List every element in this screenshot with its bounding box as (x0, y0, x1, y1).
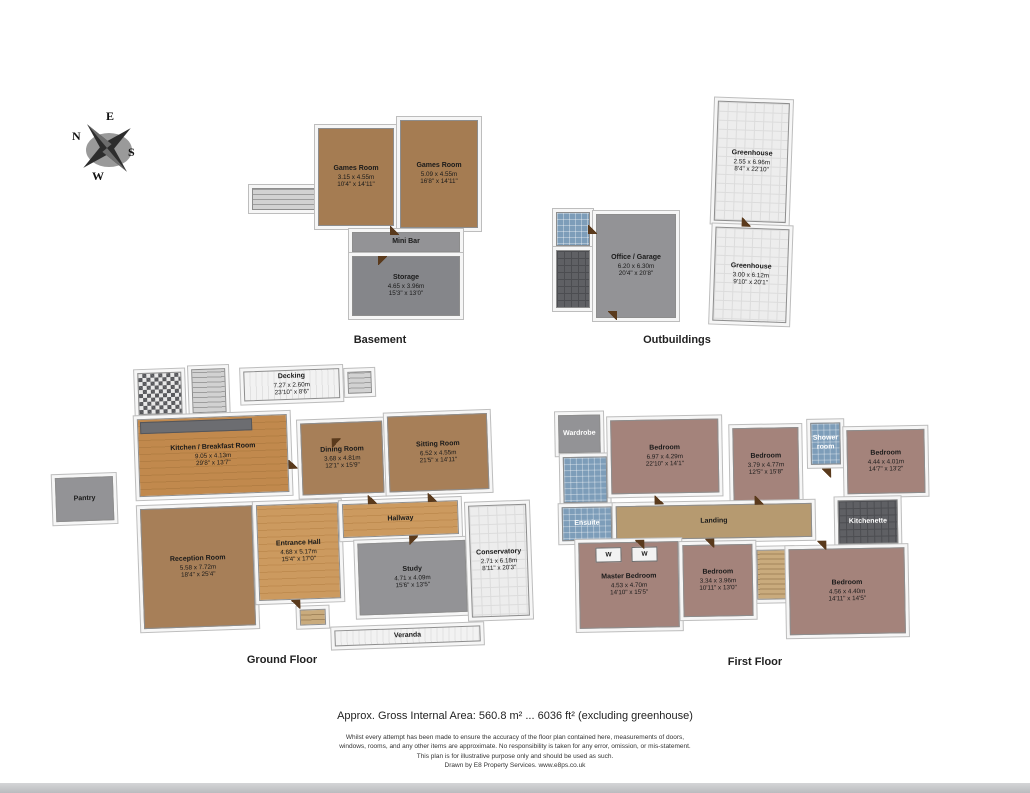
room-dims-ft: 18'4" x 25'4" (181, 571, 216, 580)
room-dims-ft: 23'10" x 8'6" (275, 389, 310, 398)
room-ensuite: Ensuite (562, 506, 613, 541)
ground-floor-title: Ground Floor (222, 654, 342, 666)
room-sitting-room: Sitting Room 6.52 x 4.55m 21'5" x 14'11" (387, 413, 490, 492)
room-dims-ft: 29'8" x 13'7" (196, 459, 231, 468)
room-dims-ft: 14'10" x 15'5" (610, 589, 648, 598)
room-entrance-hall: Entrance Hall 4.68 x 5.17m 15'4" x 17'0" (256, 502, 341, 601)
room-dims-ft: 15'4" x 17'0" (281, 555, 316, 564)
porch-steps (300, 609, 327, 626)
door (635, 540, 644, 549)
room-dims-ft: 21'5" x 14'11" (420, 456, 458, 465)
door (368, 495, 377, 504)
door (378, 256, 387, 265)
door (332, 438, 341, 447)
room-games-room-2: Games Room 5.09 x 4.55m 16'8" x 14'11" (400, 120, 478, 228)
first-floor-bathroom (563, 456, 608, 503)
room-master-bedroom: W W Master Bedroom 4.53 x 4.70m 14'10" x… (578, 541, 679, 629)
room-landing: Landing (616, 503, 813, 540)
room-name: Wardrobe (563, 429, 596, 438)
room-dims-ft: 16'8" x 14'11" (420, 178, 458, 186)
room-mini-bar: Mini Bar (352, 232, 460, 252)
room-dims-ft: 15'3" x 13'0" (389, 290, 424, 298)
room-greenhouse-1: Greenhouse 2.55 x 6.96m 8'4" x 22'10" (714, 101, 790, 223)
room-dining-room: Dining Room 3.68 x 4.81m 12'1" x 15'9" (300, 421, 384, 496)
credit-line: Drawn by E8 Property Services. www.e8ps.… (445, 762, 586, 769)
door (822, 468, 831, 477)
ground-utility (137, 372, 182, 416)
ground-floor-plan: Decking 7.27 x 2.60m 23'10" x 8'6" Kitch… (33, 351, 543, 663)
compass-south: S (128, 145, 135, 160)
door (288, 460, 297, 469)
basement-plan: Games Room 3.15 x 4.55m 10'4" x 14'11" G… (240, 100, 520, 330)
door (742, 218, 751, 227)
room-dims-ft: 12'1" x 15'9" (325, 462, 360, 471)
disclaimer-line-2: windows, rooms, and any other items are … (339, 743, 691, 750)
room-greenhouse-2: Greenhouse 3.00 x 6.12m 9'10" x 20'1" (712, 227, 789, 324)
outbuilding-lobby (556, 250, 590, 308)
room-dims-m: 4.65 x 3.96m (388, 283, 424, 291)
door (705, 539, 714, 548)
room-dims-ft: 8'11" x 20'3" (482, 564, 516, 573)
room-pantry: Pantry (55, 476, 115, 522)
gross-internal-area-note: Approx. Gross Internal Area: 560.8 m² ..… (0, 710, 1030, 722)
room-dims-ft: 12'5" x 15'8" (749, 469, 784, 477)
first-floor-stairs (756, 549, 791, 600)
room-dims-ft: 20'4" x 20'8" (619, 270, 654, 278)
room-bedroom-3: Bedroom 4.44 x 4.01m 14'7" x 13'2" (846, 429, 925, 494)
outbuildings-title: Outbuildings (622, 334, 732, 346)
room-dims-m: 3.15 x 4.55m (338, 174, 374, 182)
wardrobe-marker: W (595, 547, 621, 562)
room-games-room-1: Games Room 3.15 x 4.55m 10'4" x 14'11" (318, 128, 394, 226)
room-dims-ft: 14'7" x 13'2" (869, 466, 904, 474)
room-name: Mini Bar (392, 238, 420, 247)
door (428, 493, 437, 502)
room-wardrobe: Wardrobe (558, 415, 601, 454)
compass-west: W (92, 169, 104, 184)
room-shower-room: Shower room (810, 422, 841, 465)
room-dims-m: 6.20 x 6.30m (618, 263, 654, 271)
room-name: Shower room (811, 435, 839, 453)
first-floor-plan: Wardrobe Ensuite Bedroom 6.97 x 4.29m 22… (553, 397, 937, 654)
room-name: Games Room (416, 162, 461, 171)
room-kitchen-breakfast: Kitchen / Breakfast Room 9.05 x 4.13m 29… (137, 414, 290, 497)
ground-stairs (191, 368, 227, 413)
compass-north: N (72, 129, 81, 144)
room-dims-ft: 9'10" x 20'1" (733, 279, 768, 288)
greenhouse-plan: Greenhouse 2.55 x 6.96m 8'4" x 22'10" Gr… (706, 97, 804, 332)
room-dims-ft: 10'11" x 13'0" (699, 585, 737, 594)
room-veranda: Veranda (334, 625, 480, 646)
room-dims-m: 5.09 x 4.55m (421, 171, 457, 179)
door (588, 225, 597, 234)
room-dims-ft: 10'4" x 14'11" (337, 181, 375, 189)
room-name: Veranda (394, 631, 422, 641)
room-storage: Storage 4.65 x 3.96m 15'3" x 13'0" (352, 256, 460, 316)
door (654, 495, 663, 504)
room-decking: Decking 7.27 x 2.60m 23'10" x 8'6" (243, 368, 340, 401)
window-bottom-bar (0, 783, 1030, 793)
room-name: Games Room (333, 165, 378, 174)
disclaimer-text: Whilst every attempt has been made to en… (0, 733, 1030, 771)
room-name: Ensuite (574, 519, 599, 528)
room-dims-ft: 8'4" x 22'10" (734, 166, 769, 175)
room-name: Pantry (74, 494, 96, 504)
room-bedroom-5: Bedroom 4.56 x 4.40m 14'11" x 14'5" (788, 547, 905, 635)
door (754, 496, 763, 505)
room-dims-ft: 15'6" x 13'5" (395, 581, 430, 590)
room-name: Storage (393, 274, 419, 283)
room-dims-ft: 14'11" x 14'5" (828, 595, 866, 604)
door (390, 226, 399, 235)
room-name: Hallway (387, 514, 413, 524)
disclaimer-line-3: This plan is for illustrative purpose on… (417, 753, 614, 760)
basement-title: Basement (330, 334, 430, 346)
room-bedroom-1: Bedroom 6.97 x 4.29m 22'10" x 14'1" (610, 418, 719, 494)
room-hallway: Hallway (342, 500, 459, 538)
room-name: Kitchenette (849, 517, 887, 526)
room-name: Office / Garage (611, 254, 661, 263)
room-bedroom-2: Bedroom 3.79 x 4.77m 12'5" x 15'8" (732, 427, 799, 502)
decking-steps (347, 371, 372, 394)
door (291, 600, 300, 609)
door (817, 541, 826, 550)
room-name: Landing (700, 517, 727, 526)
room-conservatory: Conservatory 2.71 x 6.18m 8'11" x 20'3" (468, 504, 530, 618)
room-kitchenette: Kitchenette (838, 499, 899, 544)
outbuilding-wc (556, 212, 590, 246)
basement-stairs (252, 188, 316, 210)
compass-rose: E N S W (62, 103, 152, 193)
room-bedroom-4: Bedroom 3.34 x 3.96m 10'11" x 13'0" (682, 544, 753, 617)
door (409, 535, 418, 544)
door (608, 311, 617, 320)
room-study: Study 4.71 x 4.09m 15'6" x 13'5" (357, 540, 467, 616)
outbuilding-plan: Office / Garage 6.20 x 6.30m 20'4" x 20'… (548, 205, 688, 330)
room-dims-ft: 22'10" x 14'1" (646, 460, 684, 469)
first-floor-title: First Floor (700, 656, 810, 668)
compass-east: E (106, 109, 114, 124)
kitchen-counter (140, 418, 252, 434)
disclaimer-line-1: Whilst every attempt has been made to en… (346, 734, 684, 741)
room-reception-room: Reception Room 5.58 x 7.72m 18'4" x 25'4… (140, 505, 256, 629)
room-office-garage: Office / Garage 6.20 x 6.30m 20'4" x 20'… (596, 214, 676, 318)
